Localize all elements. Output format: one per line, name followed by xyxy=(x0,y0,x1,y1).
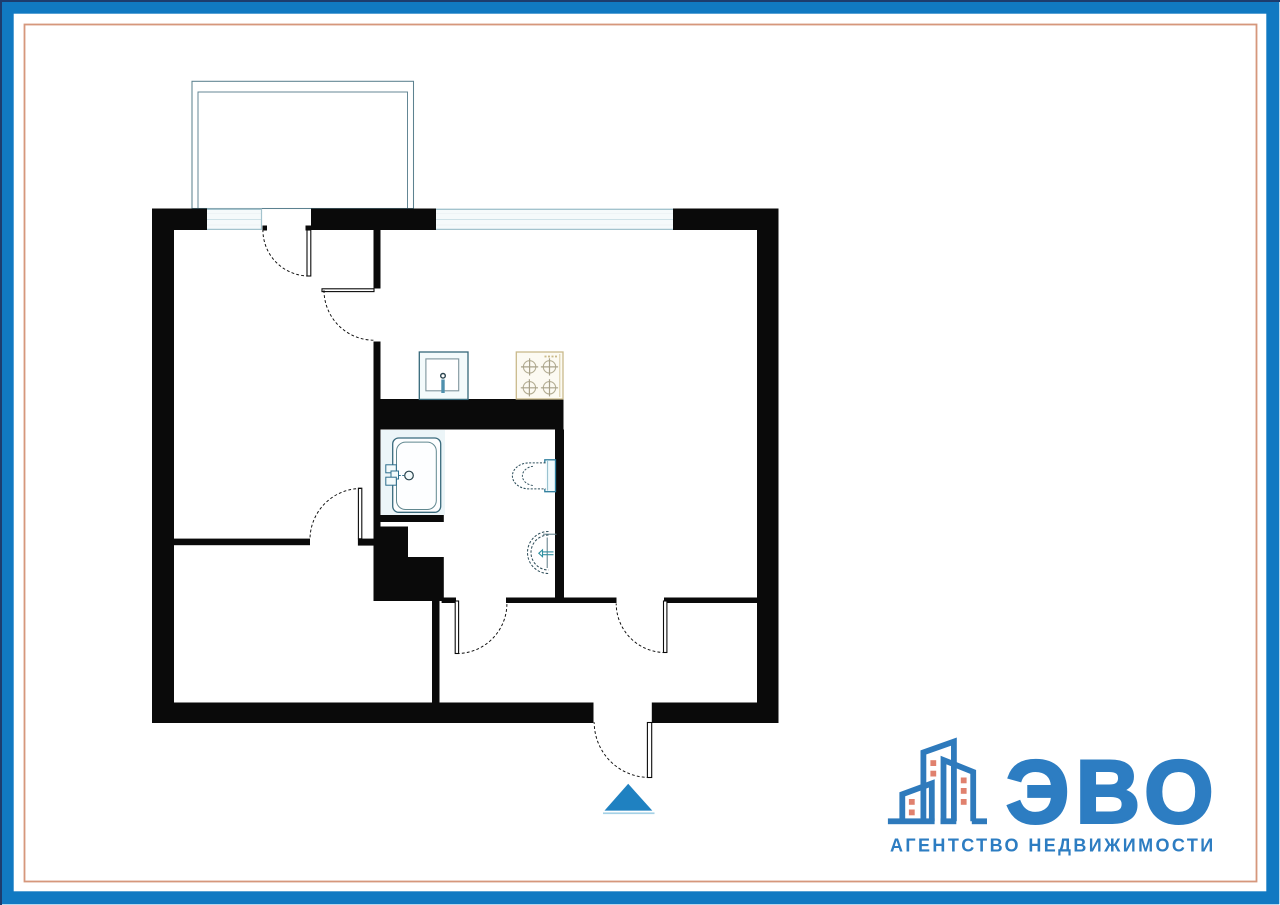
svg-text:ЭВО: ЭВО xyxy=(1006,742,1220,842)
svg-text:АГЕНТСТВО НЕДВИЖИМОСТИ: АГЕНТСТВО НЕДВИЖИМОСТИ xyxy=(890,836,1216,856)
